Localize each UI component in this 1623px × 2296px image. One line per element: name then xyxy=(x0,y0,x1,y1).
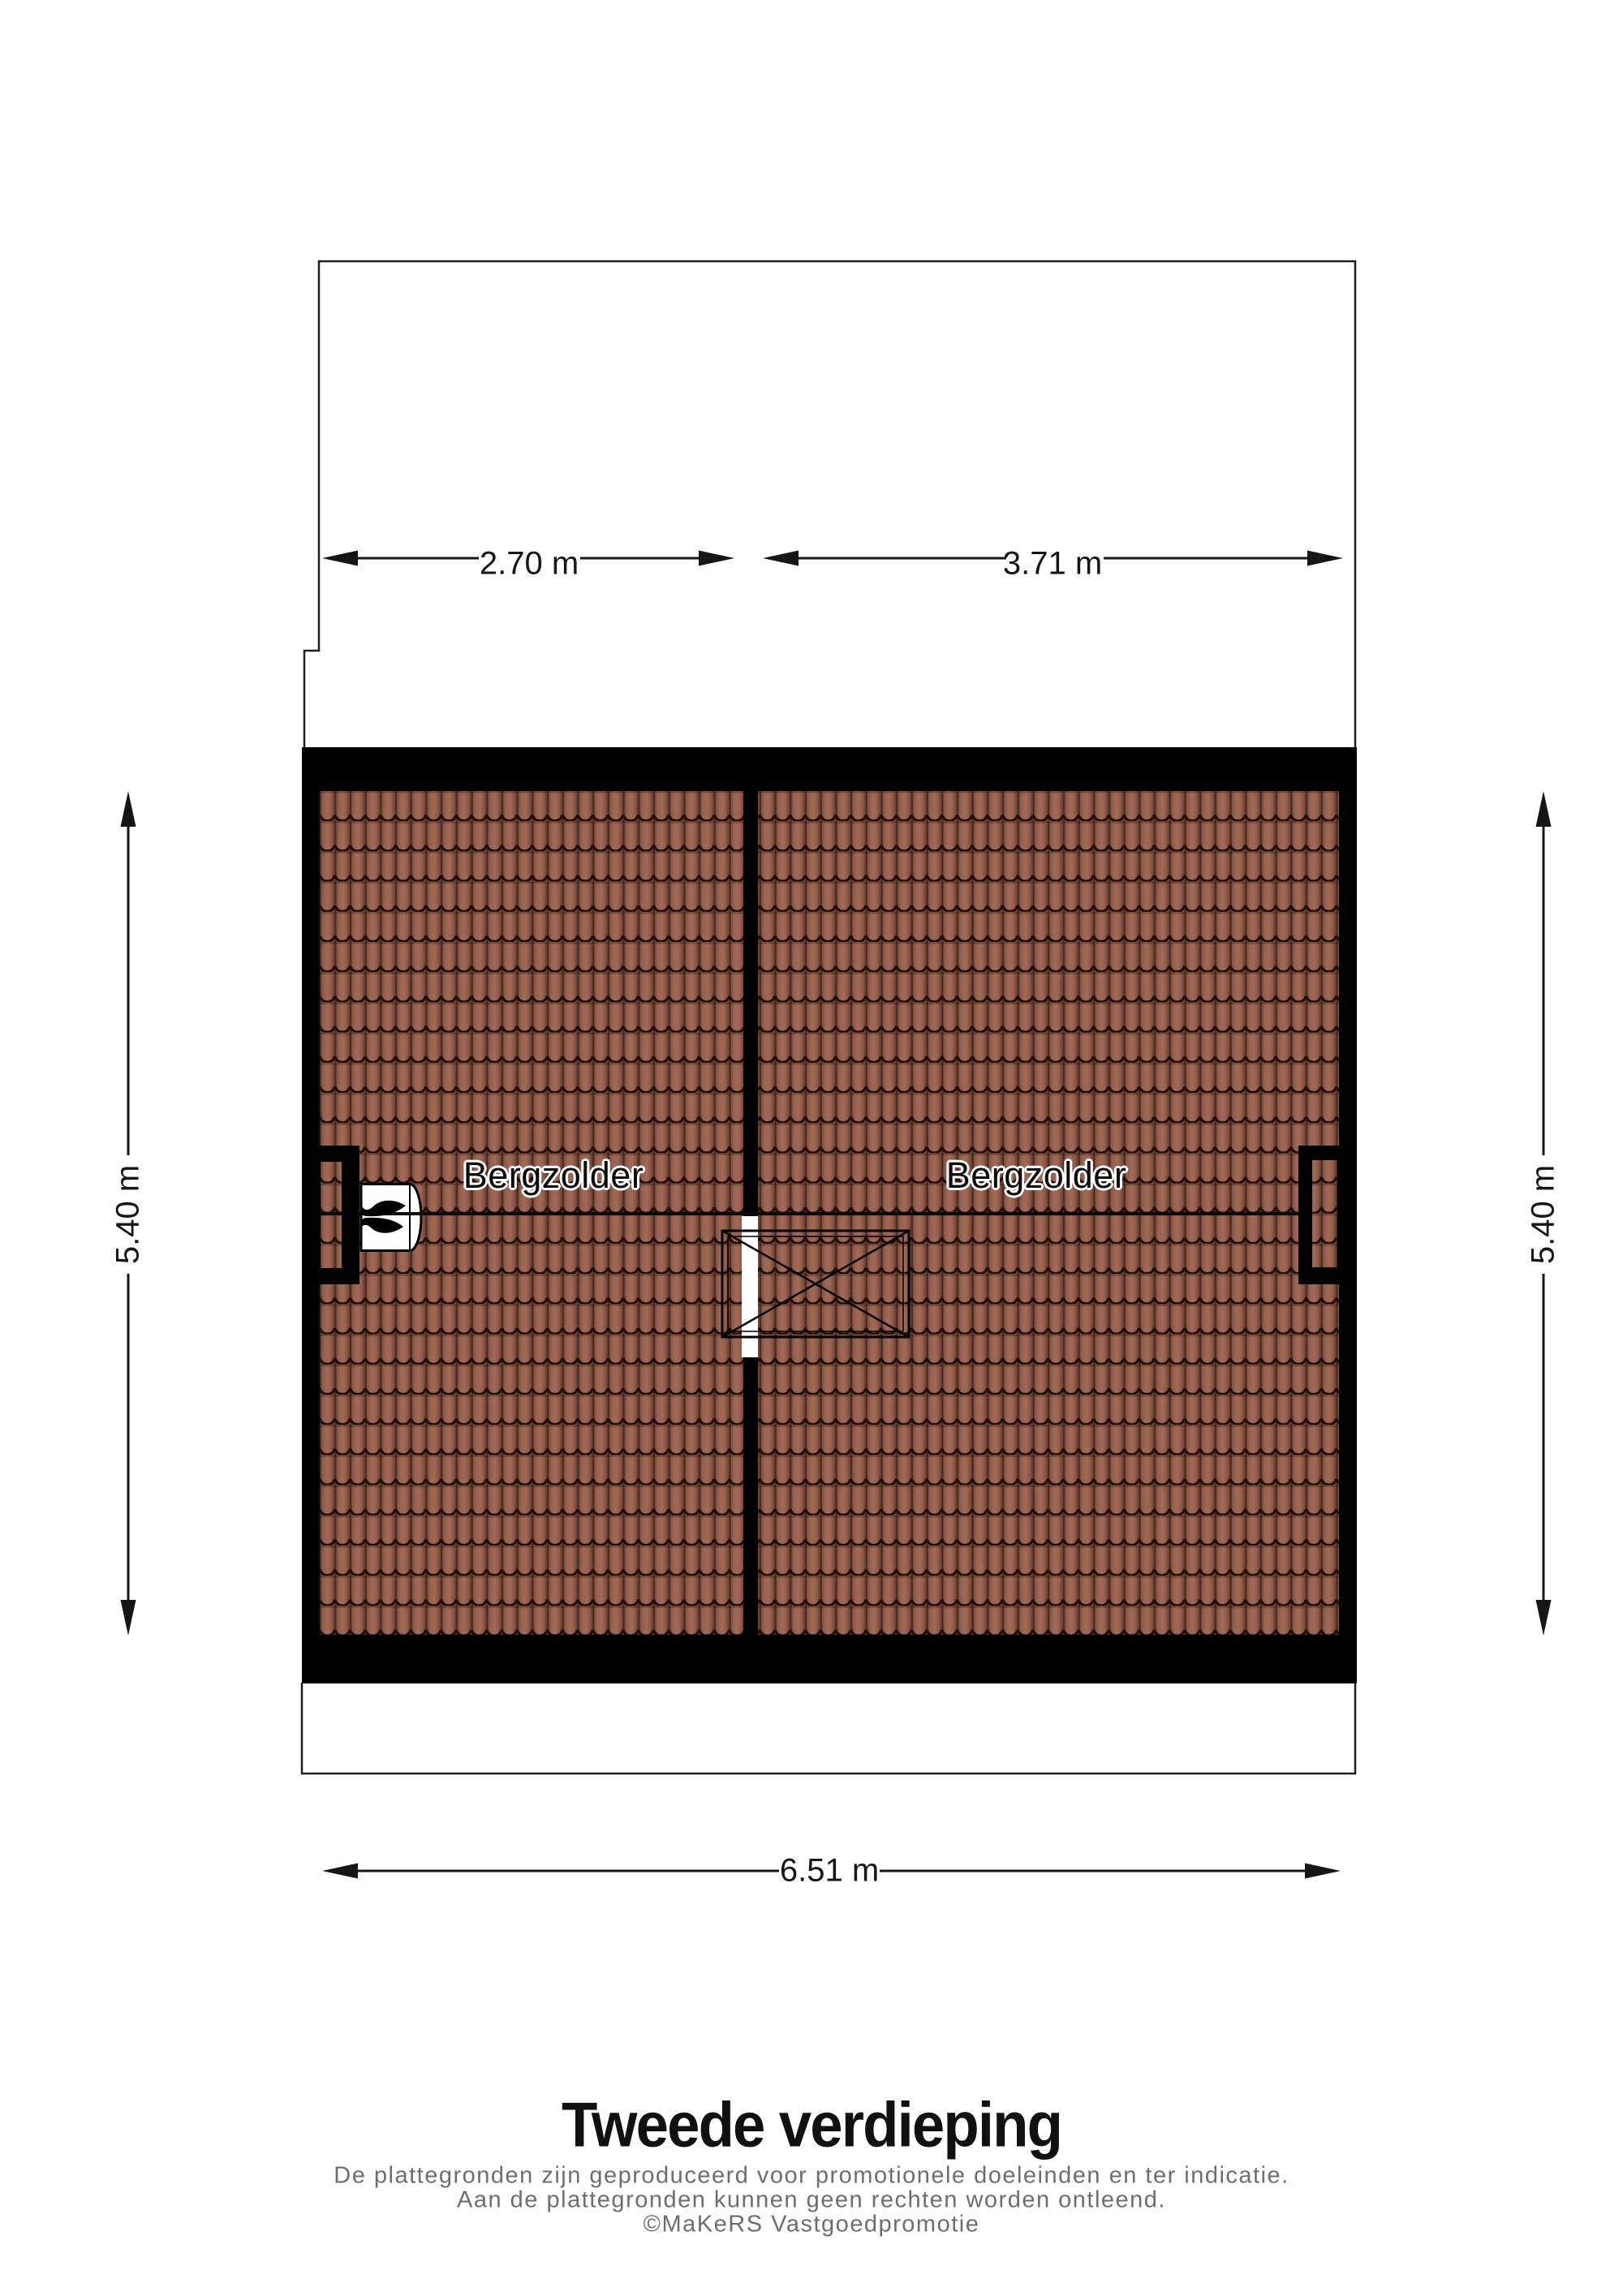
boiler xyxy=(361,1185,421,1251)
room-label-bergzolder-right: Bergzolder xyxy=(946,1154,1127,1197)
arrow-up-icon xyxy=(1536,791,1552,827)
floor-plan-page: 2.70 m 3.71 m 5.40 m 5.40 m 6.51 m Bergz… xyxy=(0,0,1623,2296)
disclaimer-line-3: ©MaKeRS Vastgoedpromotie xyxy=(644,2212,980,2238)
arrow-left-icon xyxy=(322,1864,358,1879)
dimension-label-left: 5.40 m xyxy=(110,1165,147,1264)
floor-plan-drawing xyxy=(0,0,1623,2296)
dimension-label-top-right: 3.71 m xyxy=(1003,546,1102,583)
arrow-up-icon xyxy=(121,791,136,827)
disclaimer-line-2: Aan de plattegronden kunnen geen rechten… xyxy=(457,2187,1166,2214)
page-title: Tweede verdieping xyxy=(562,2088,1061,2162)
lower-outline-region xyxy=(302,1683,1355,1774)
dimension-label-bottom: 6.51 m xyxy=(780,1853,879,1890)
room-label-bergzolder-left: Bergzolder xyxy=(463,1154,644,1197)
ridge-line xyxy=(320,1212,1298,1215)
arrow-right-icon xyxy=(1305,1864,1341,1879)
upper-outline-region xyxy=(304,261,1355,747)
dimension-label-top-left: 2.70 m xyxy=(480,546,579,583)
dimension-label-right: 5.40 m xyxy=(1526,1165,1562,1264)
arrow-down-icon xyxy=(121,1600,136,1636)
disclaimer-line-1: De plattegronden zijn geproduceerd voor … xyxy=(334,2163,1289,2190)
arrow-down-icon xyxy=(1536,1600,1552,1636)
